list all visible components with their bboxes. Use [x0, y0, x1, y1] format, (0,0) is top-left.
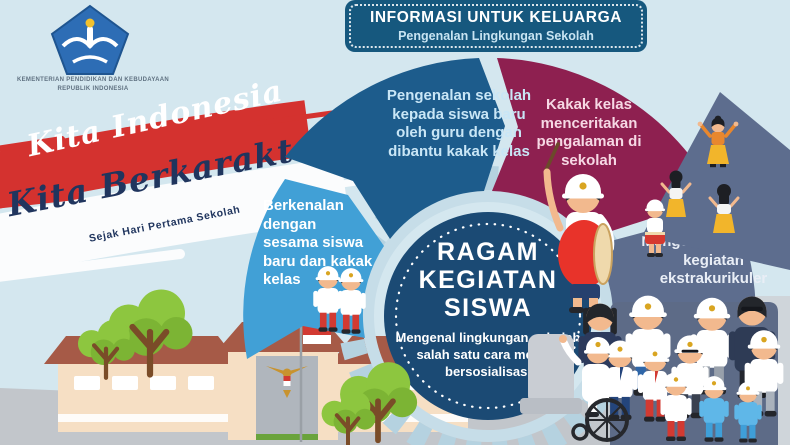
header-subtitle: Pengenalan Lingkungan Sekolah — [398, 29, 594, 43]
drummer-boy — [546, 144, 612, 313]
ministry-caption: KEMENTERIAN PENDIDIKAN DAN KEBUDAYAAN RE… — [8, 76, 178, 94]
ministry-line1: KEMENTERIAN PENDIDIKAN DAN KEBUDAYAAN — [8, 76, 178, 85]
header-title: INFORMASI UNTUK KELUARGA — [370, 9, 622, 27]
drummer-girl — [645, 200, 665, 258]
ministry-line2: REPUBLIK INDONESIA — [8, 85, 178, 94]
trees — [78, 290, 417, 445]
bench-base — [520, 398, 582, 414]
tut-wuri-handayani-logo — [45, 4, 135, 78]
infographic-poster: Kita Indonesia Kita Berkarakter Sejak Ha… — [0, 0, 790, 445]
header-banner-border: INFORMASI UNTUK KELUARGA Pengenalan Ling… — [349, 4, 643, 48]
elementary-students-pair — [313, 266, 365, 334]
header-banner: INFORMASI UNTUK KELUARGA Pengenalan Ling… — [345, 0, 647, 52]
